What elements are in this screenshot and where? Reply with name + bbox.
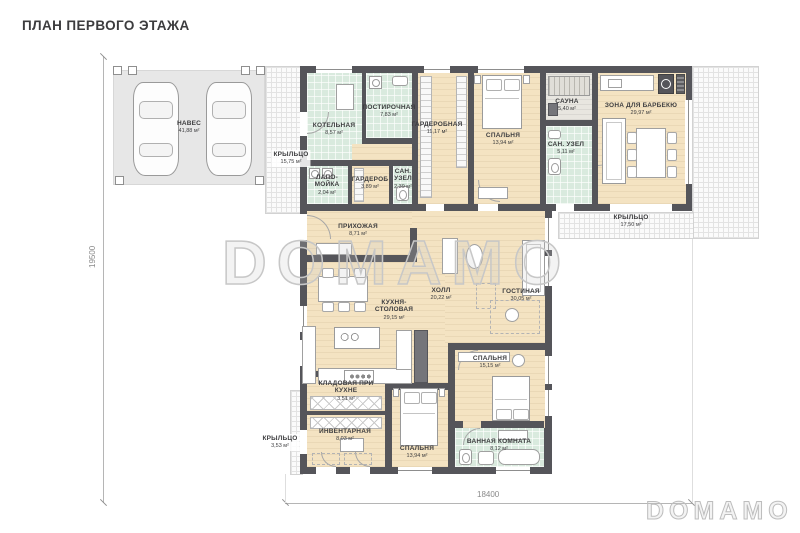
door-gap [426, 204, 444, 211]
room-label-san-uzel-small: САН. УЗЕЛ2,39 м² [391, 168, 415, 190]
floor-mini-hall [352, 144, 412, 160]
chair-icon [667, 166, 677, 178]
sink-icon [392, 76, 408, 86]
porch-right-side [692, 66, 759, 239]
desk-chair-icon [512, 354, 525, 367]
firewood-icon [676, 74, 685, 94]
wall [307, 411, 385, 415]
bed-icon [400, 388, 438, 446]
wall [455, 421, 463, 428]
car-icon [133, 82, 179, 176]
window [545, 390, 552, 416]
bicycle-icon [312, 453, 340, 465]
barbecue-open-side [685, 100, 692, 184]
barbecue-opening [610, 204, 672, 211]
sauna-bench [548, 76, 590, 96]
tall-cabinet-icon [414, 330, 428, 383]
room-label-kryltso-right: КРЫЛЬЦО17,50 м² [613, 214, 648, 229]
pillow [404, 392, 420, 404]
chair-icon [667, 149, 677, 161]
door-gap [556, 204, 574, 211]
dimension-line-horizontal [285, 503, 692, 504]
dimension-line-vertical [103, 56, 104, 503]
room-label-kladovaya: КЛАДОВАЯ ПРИ КУХНЕ3,51 м² [314, 380, 378, 402]
pillow [504, 79, 520, 91]
carport-post [255, 176, 264, 185]
dresser-icon [478, 187, 508, 199]
pillow [513, 409, 529, 420]
room-label-kotelnaya: КОТЕЛЬНАЯ8,57 м² [313, 122, 355, 137]
room-label-san-uzel: САН. УЗЕЛ5,11 м² [548, 141, 584, 156]
blanket-line [495, 399, 527, 400]
car-rear-window [212, 143, 246, 157]
carport-post [241, 66, 250, 75]
chair-icon [627, 149, 637, 161]
room-label-spalnya-mid: СПАЛЬНЯ15,15 м² [473, 355, 507, 370]
room-label-barbekyu: ЗОНА ДЛЯ БАРБЕКЮ29,97 м² [605, 102, 677, 117]
room-label-kryltso-left: КРЫЛЬЦО15,75 м² [271, 150, 310, 167]
guide-line [692, 237, 693, 503]
door-gap [300, 430, 307, 454]
room-label-vannaya: ВАННАЯ КОМНАТА8,12 м² [453, 438, 545, 453]
nightstand-icon [439, 388, 445, 397]
fridge-icon [396, 330, 412, 370]
dimension-value-vertical: 19500 [88, 246, 97, 268]
room-label-sauna: САУНА5,40 м² [555, 98, 578, 113]
car-icon [206, 82, 252, 176]
watermark-corner: DOMAMO [646, 497, 793, 526]
carport-post [115, 176, 124, 185]
carport-post [113, 66, 122, 75]
bed-icon [492, 376, 530, 421]
wall [448, 343, 458, 350]
room-label-postirochnaya: ПОСТИРОЧНАЯ7,83 м² [362, 104, 415, 119]
washing-machine-icon [369, 76, 382, 89]
pillow [421, 392, 437, 404]
window [316, 66, 352, 73]
car-windshield [212, 101, 246, 119]
room-label-kryltso-bottom: КРЫЛЬЦО3,53 м² [260, 434, 299, 451]
bicycle-icon [344, 453, 372, 465]
wardrobe-rack [420, 76, 432, 198]
carport-post [128, 66, 137, 75]
window [496, 467, 530, 474]
chair-icon [338, 302, 350, 312]
room-label-spalnya-top: СПАЛЬНЯ13,94 м² [486, 132, 520, 147]
door-gap [350, 467, 370, 474]
nightstand-icon [393, 388, 399, 397]
dimension-value-horizontal: 18400 [477, 490, 499, 499]
chair-icon [667, 132, 677, 144]
blanket-line [485, 98, 519, 99]
room-label-garderobnaya: ГАРДЕРОБНАЯ11,17 м² [411, 121, 462, 136]
room-label-garderob: ГАРДЕРОБ3,89 м² [352, 176, 388, 191]
window [545, 356, 552, 384]
sink-icon [548, 130, 561, 139]
door-gap [478, 204, 498, 211]
window [398, 467, 432, 474]
room-label-naves: НАВЕС41,88 м² [177, 120, 201, 135]
door-gap [316, 467, 336, 474]
room-label-inventarnaya: ИНВЕНТАРНАЯ8,03 м² [319, 428, 371, 443]
kitchen-counter [302, 326, 316, 384]
boiler-icon [336, 84, 354, 110]
chair-icon [322, 302, 334, 312]
coffee-table-icon [505, 308, 519, 322]
kitchen-island-icon [334, 327, 380, 349]
pillow [486, 79, 502, 91]
dining-table-icon [636, 128, 666, 178]
guide-line [285, 474, 286, 503]
wall [481, 421, 544, 428]
nightstand-icon [474, 75, 481, 84]
blanket-line [403, 413, 435, 414]
page-title: ПЛАН ПЕРВОГО ЭТАЖА [22, 18, 190, 33]
car-rear-window [139, 143, 173, 157]
window [424, 66, 450, 73]
floor-plan-page: ПЛАН ПЕРВОГО ЭТАЖА 19500 18400 [0, 0, 800, 533]
shower-icon [478, 451, 494, 465]
nightstand-icon [523, 75, 530, 84]
grill-icon [658, 74, 674, 94]
room-label-lapomoyka: ЛАПО-МОЙКА2,04 м² [311, 174, 343, 196]
toilet-icon [548, 158, 561, 175]
chair-icon [627, 166, 637, 178]
door-gap [300, 112, 307, 136]
wall [385, 371, 392, 467]
room-label-spalnya-bottom: СПАЛЬНЯ13,94 м² [400, 445, 434, 460]
wall [476, 343, 552, 350]
bed-icon [482, 75, 522, 129]
carport-post [256, 66, 265, 75]
window [478, 66, 524, 73]
car-windshield [139, 101, 173, 119]
chair-icon [627, 132, 637, 144]
pillow [496, 409, 512, 420]
sofa-icon [602, 118, 626, 184]
sink-icon [608, 79, 622, 88]
room-label-kuhnya: КУХНЯ-СТОЛОВАЯ29,15 м² [364, 299, 424, 321]
sofa-seat [606, 122, 622, 180]
watermark-center: DOMAMO [222, 228, 571, 299]
